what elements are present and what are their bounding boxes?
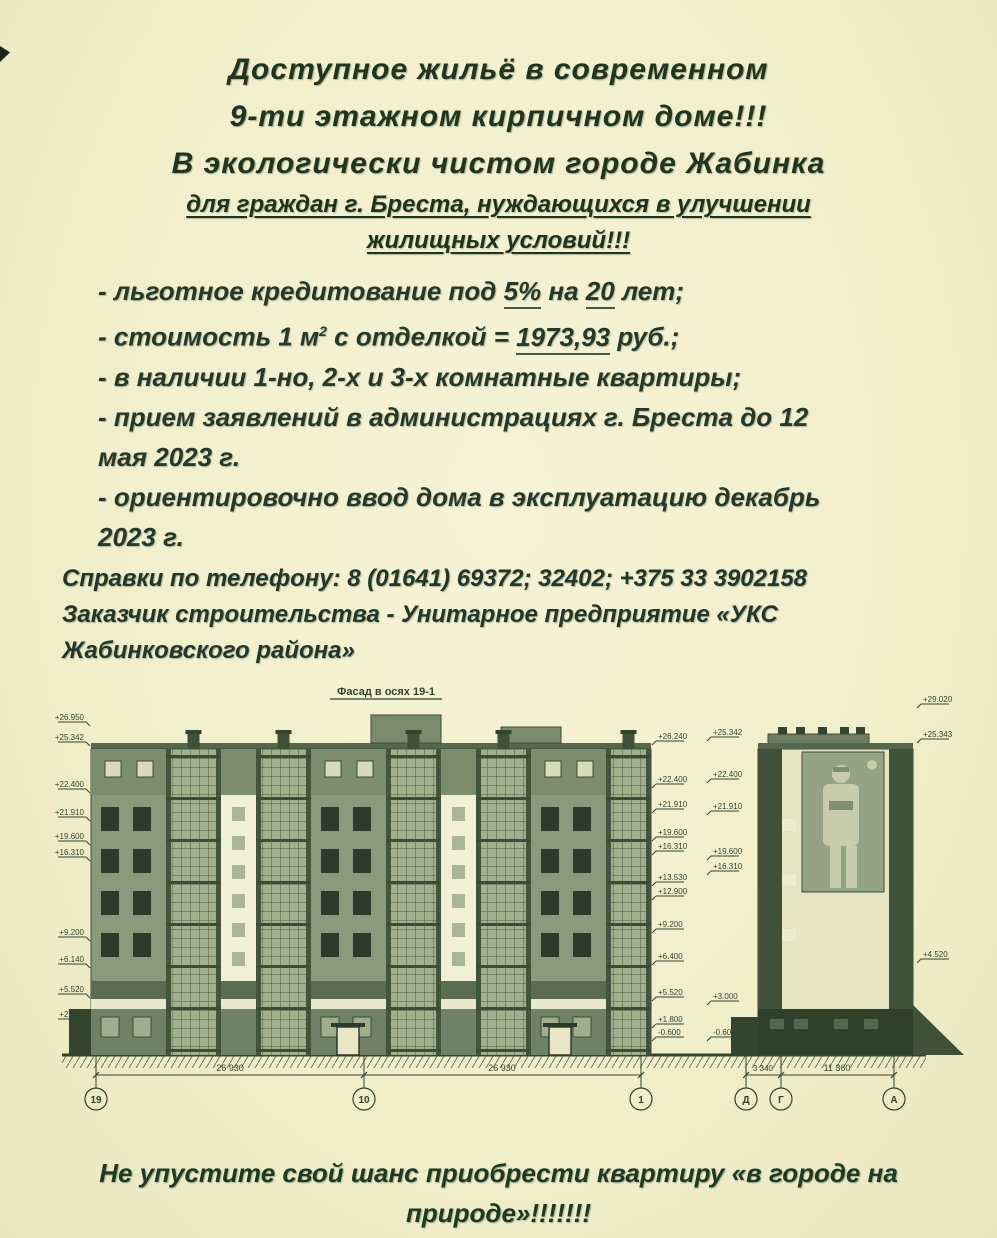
leader-line: [652, 929, 656, 933]
elevation-mark: +16.310: [55, 848, 85, 857]
window: [353, 891, 371, 915]
elevation-mark: +12.900: [658, 887, 688, 896]
window: [321, 891, 339, 915]
attic-window: [325, 761, 341, 777]
leader-line: [652, 741, 656, 745]
list-item-commissioning: - ориентировочно ввод дома в эксплуатаци…: [98, 477, 961, 517]
slogan-line-1: Не упустите свой шанс приобрести квартир…: [0, 1153, 997, 1193]
attic-window: [137, 761, 153, 777]
axis-label: Г: [778, 1095, 784, 1106]
window: [321, 807, 339, 831]
axis-label: 19: [90, 1095, 102, 1106]
loggia-panel: [232, 894, 245, 908]
superscript: 2: [319, 323, 327, 339]
elevation-mark: +22.400: [713, 770, 743, 779]
drawing-title: Фасад в осях 19-1: [337, 686, 435, 698]
loggia-panel: [452, 836, 465, 850]
customer-line-2: Жабинковского района»: [62, 633, 967, 669]
elevation-mark: +19.600: [713, 847, 743, 856]
elevation-mark: +26.240: [658, 732, 688, 741]
leader-line: [652, 1024, 656, 1028]
leader-line: [86, 857, 90, 861]
window: [573, 891, 591, 915]
subtitle-line-2: жилищных условий!!!: [0, 223, 997, 259]
leader-line: [86, 789, 90, 793]
main-facade: [69, 715, 651, 1055]
window: [101, 933, 119, 957]
benefits-list: - льготное кредитование под 5% на 20 лет…: [0, 271, 997, 557]
elevation-mark: +13.530: [658, 873, 688, 882]
leader-line: [652, 851, 656, 855]
leader-line: [86, 994, 90, 998]
leader-line: [652, 882, 656, 886]
dimension-label: 3 340: [753, 1064, 774, 1073]
leader-line: [86, 937, 90, 941]
window: [573, 933, 591, 957]
leader-line: [707, 871, 711, 875]
elevation-mark: +21.910: [658, 800, 688, 809]
leader-line: [707, 1001, 711, 1005]
leader-line: [86, 817, 90, 821]
elevation-mark: -0.600: [658, 1028, 681, 1037]
list-item-commissioning-cont: 2023 г.: [98, 517, 961, 557]
roof-stub: [408, 733, 420, 749]
leader-line: [652, 784, 656, 788]
window: [133, 933, 151, 957]
window: [353, 849, 371, 873]
elevation-mark: +22.400: [55, 780, 85, 789]
window: [133, 849, 151, 873]
dimension-label: 11 360: [824, 1063, 851, 1073]
leader-line: [917, 739, 921, 743]
underlined-value: 5%: [504, 276, 542, 309]
window: [353, 807, 371, 831]
list-item-credit: - льготное кредитование под 5% на 20 лет…: [98, 271, 961, 311]
leader-line: [707, 737, 711, 741]
facade-elevation-svg: Фасад в осях 19-1+26.950+25.342+22.400+2…: [34, 679, 968, 1129]
roof-stub: [623, 733, 635, 749]
elevation-mark: +26.950: [55, 713, 85, 722]
attic-window: [577, 761, 593, 777]
attic-window: [545, 761, 561, 777]
loggia-panel: [452, 807, 465, 821]
mural: [802, 752, 884, 892]
contact-block: Справки по телефону: 8 (01641) 69372; 32…: [0, 561, 997, 669]
list-item-price: - стоимость 1 м2 с отделкой = 1973,93 ру…: [98, 311, 961, 357]
window: [321, 933, 339, 957]
leader-line: [917, 704, 921, 708]
elevation-mark: +4.520: [923, 950, 948, 959]
end-facade: [731, 727, 964, 1055]
window: [101, 849, 119, 873]
leader-line: [86, 742, 90, 746]
loggia-panel: [232, 865, 245, 879]
phone-line: Справки по телефону: 8 (01641) 69372; 32…: [62, 561, 967, 597]
dimension-label: 26 930: [488, 1063, 516, 1073]
elevation-mark: +3.000: [713, 992, 738, 1001]
window: [541, 933, 559, 957]
leader-line: [86, 841, 90, 845]
facade-drawing: Фасад в осях 19-1+26.950+25.342+22.400+2…: [34, 679, 968, 1129]
axis-label: Д: [742, 1095, 749, 1106]
list-item-applications: - прием заявлений в администрациях г. Бр…: [98, 397, 961, 437]
loggia-panel: [452, 952, 465, 966]
list-item-applications-cont: мая 2023 г.: [98, 437, 961, 477]
window: [573, 849, 591, 873]
roof-stub: [278, 733, 290, 749]
elevation-mark: +21.910: [713, 802, 743, 811]
leader-line: [652, 1037, 656, 1041]
window: [133, 891, 151, 915]
elevation-mark: +21.910: [55, 808, 85, 817]
elevation-mark: +29.020: [923, 695, 953, 704]
attic-window: [357, 761, 373, 777]
axis-label: А: [890, 1095, 897, 1106]
underlined-value: 20: [586, 276, 615, 309]
elevation-mark: +25.343: [923, 730, 953, 739]
elevation-mark: +16.310: [713, 862, 743, 871]
elevation-mark: +5.520: [59, 985, 84, 994]
leader-line: [652, 961, 656, 965]
axis-label: 10: [358, 1095, 370, 1106]
window: [541, 891, 559, 915]
window: [353, 933, 371, 957]
dimension-label: 26 930: [216, 1063, 244, 1073]
axis-label: 1: [638, 1095, 644, 1106]
elevation-mark: +25.342: [713, 728, 743, 737]
elevation-mark: +22.400: [658, 775, 688, 784]
list-item-apartments: - в наличии 1-но, 2-х и 3-х комнатные кв…: [98, 357, 961, 397]
roof-stub: [188, 733, 200, 749]
elevation-mark: +19.600: [658, 828, 688, 837]
roof-stub: [498, 733, 510, 749]
attic-window: [105, 761, 121, 777]
title-line-1: Доступное жильё в современном: [0, 46, 997, 93]
elevation-mark: +19.600: [55, 832, 85, 841]
leader-line: [652, 896, 656, 900]
title-block: Доступное жильё в современном 9-ти этажн…: [0, 0, 997, 259]
flyer-page: Доступное жильё в современном 9-ти этажн…: [0, 0, 997, 1238]
elevation-mark: +9.200: [59, 928, 84, 937]
loggia-panel: [452, 923, 465, 937]
loggia-panel: [232, 836, 245, 850]
loggia-panel: [452, 894, 465, 908]
leader-line: [86, 964, 90, 968]
leader-line: [707, 856, 711, 860]
slogan-line-2: природе»!!!!!!!: [0, 1193, 997, 1233]
elevation-mark: -0.600: [713, 1028, 736, 1037]
loggia-panel: [452, 865, 465, 879]
elevation-mark: +16.310: [658, 842, 688, 851]
window: [541, 807, 559, 831]
window: [321, 849, 339, 873]
customer-line-1: Заказчик строительства - Унитарное предп…: [62, 597, 967, 633]
window: [133, 807, 151, 831]
window: [541, 849, 559, 873]
loggia-panel: [232, 952, 245, 966]
elevation-mark: +6.400: [658, 952, 683, 961]
subtitle-line-1: для граждан г. Бреста, нуждающихся в улу…: [0, 187, 997, 223]
title-line-3: В экологически чистом городе Жабинка: [0, 140, 997, 187]
elevation-mark: +5.520: [658, 988, 683, 997]
footer-slogan: Не упустите свой шанс приобрести квартир…: [0, 1153, 997, 1233]
leader-line: [652, 809, 656, 813]
leader-line: [707, 811, 711, 815]
underlined-value: 1973,93: [516, 322, 610, 355]
loggia-panel: [232, 923, 245, 937]
ground-window: [101, 1017, 119, 1037]
window: [573, 807, 591, 831]
window: [101, 807, 119, 831]
window: [101, 891, 119, 915]
leader-line: [707, 779, 711, 783]
leader-line: [652, 997, 656, 1001]
leader-line: [917, 959, 921, 963]
elevation-mark: +1.800: [658, 1015, 683, 1024]
elevation-mark: +9.200: [658, 920, 683, 929]
ground-window: [133, 1017, 151, 1037]
elevation-mark: +6.140: [59, 955, 84, 964]
loggia-panel: [232, 807, 245, 821]
leader-line: [86, 722, 90, 726]
leader-line: [707, 1037, 711, 1041]
leader-line: [652, 837, 656, 841]
elevation-mark: +2.760: [59, 1010, 84, 1019]
title-line-2: 9-ти этажном кирпичном доме!!!: [0, 93, 997, 140]
elevation-mark: +25.342: [55, 733, 85, 742]
